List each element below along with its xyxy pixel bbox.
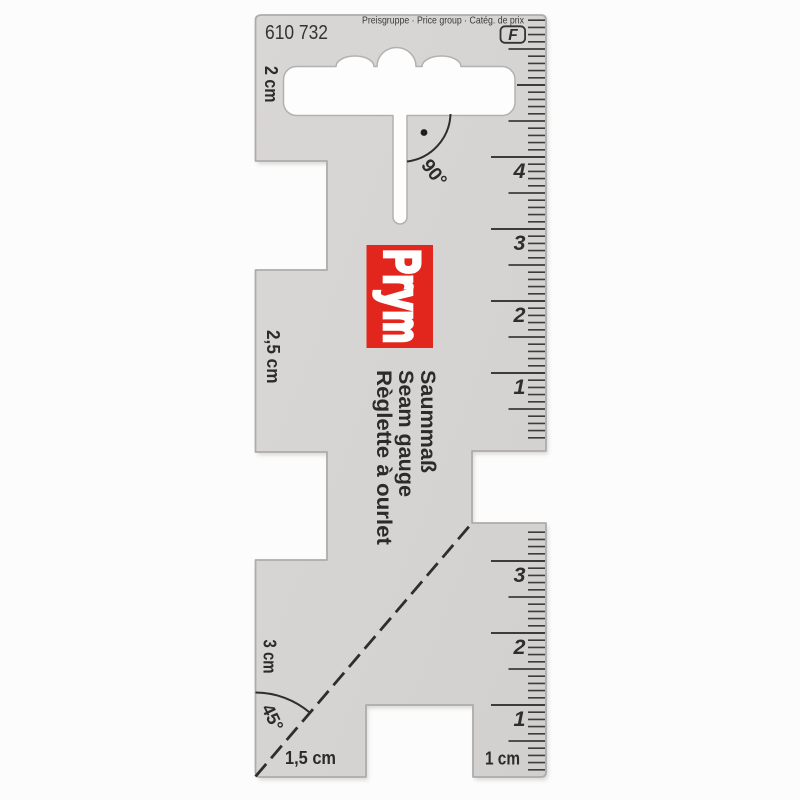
svg-text:1: 1 [514, 375, 526, 399]
svg-text:2: 2 [513, 635, 526, 659]
svg-text:1 cm: 1 cm [485, 749, 520, 769]
svg-text:F: F [508, 27, 518, 44]
svg-text:2: 2 [513, 303, 526, 327]
svg-text:4: 4 [513, 159, 526, 183]
svg-text:Prym: Prym [373, 249, 429, 344]
svg-text:1,5 cm: 1,5 cm [285, 748, 336, 768]
svg-text:3: 3 [514, 563, 526, 587]
svg-text:1: 1 [514, 707, 526, 731]
svg-text:Preisgruppe · Price group · Ca: Preisgruppe · Price group · Catég. de pr… [362, 15, 525, 27]
svg-text:3: 3 [514, 231, 526, 255]
svg-text:Seam gauge: Seam gauge [394, 370, 417, 497]
svg-text:610 732: 610 732 [265, 22, 328, 44]
svg-text:2,5 cm: 2,5 cm [263, 330, 283, 384]
svg-text:Saummaß: Saummaß [416, 370, 439, 473]
svg-text:3 cm: 3 cm [260, 640, 280, 674]
svg-text:2 cm: 2 cm [261, 66, 281, 103]
svg-text:Règlette à ourlet: Règlette à ourlet [372, 370, 395, 545]
